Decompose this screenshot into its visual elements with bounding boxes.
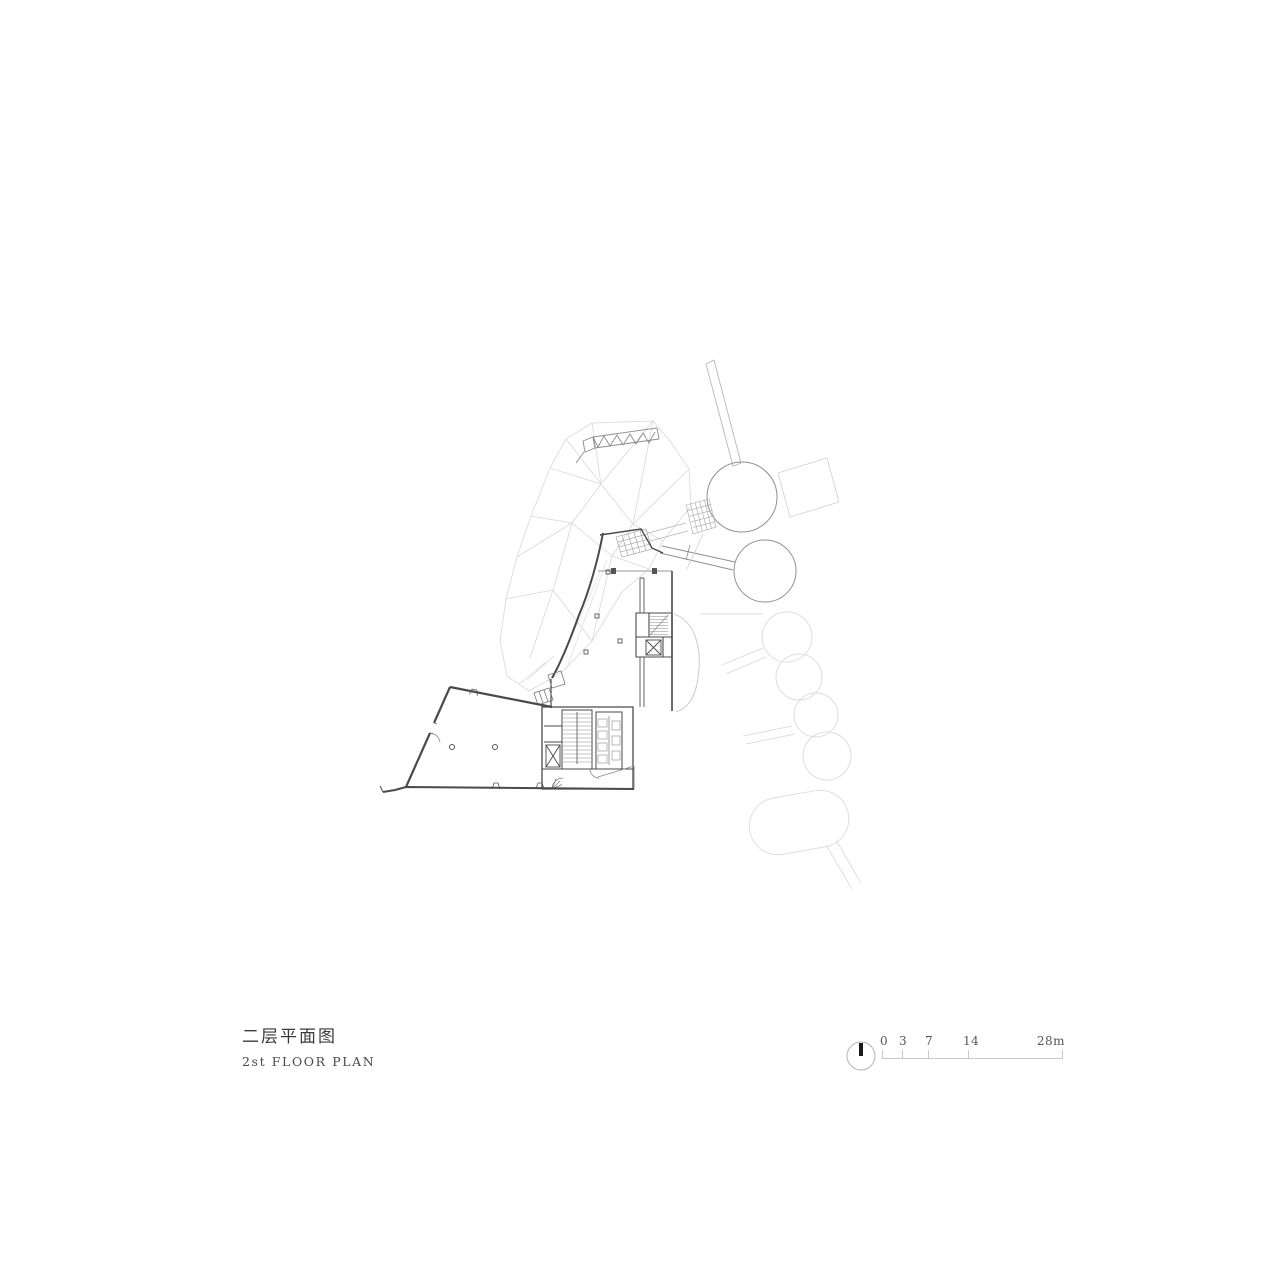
wing-north-wall <box>450 687 552 707</box>
grid-deck <box>686 499 716 534</box>
elevator-shaft <box>646 640 661 655</box>
north-arrow-icon <box>844 1039 878 1073</box>
wall-pier <box>652 568 657 574</box>
plan-title-english: 2st FLOOR PLAN <box>242 1054 375 1069</box>
faceted-canopy-outline <box>500 421 691 691</box>
tree-pod-lower <box>660 534 796 602</box>
main-core <box>542 707 634 789</box>
ramp-grid <box>616 523 688 557</box>
tree-pod-chain <box>700 612 861 889</box>
scale-bar: 0 3 7 14 28m <box>882 1036 1063 1059</box>
pod-circle <box>707 462 777 532</box>
stair-treads <box>563 712 591 764</box>
scale-label: 14 <box>963 1034 979 1048</box>
pod-stalk <box>706 360 741 466</box>
plan-title-chinese: 二层平面图 <box>242 1028 375 1047</box>
scale-label: 0 <box>880 1034 888 1048</box>
wall-pier <box>611 568 616 574</box>
restroom-block <box>598 716 620 765</box>
elevator-shaft <box>546 745 560 767</box>
scale-label: 28m <box>1037 1034 1065 1048</box>
wing-south-wall <box>383 787 634 792</box>
door-swings <box>552 769 599 789</box>
pod-circle <box>734 540 796 602</box>
floor-plan-drawing <box>0 0 1280 1280</box>
east-terrace-band <box>674 614 699 712</box>
upper-core <box>636 613 672 657</box>
hall-columns <box>584 570 622 654</box>
access-bridge <box>660 545 735 570</box>
wing-west-wall <box>406 687 450 787</box>
column <box>450 745 455 750</box>
scale-baseline <box>882 1058 1063 1059</box>
stair-treads <box>650 615 668 635</box>
scale-label: 3 <box>899 1034 907 1048</box>
door-swing <box>430 723 440 742</box>
scale-label: 7 <box>925 1034 933 1048</box>
tree-pod-upper <box>686 360 839 534</box>
title-block: 二层平面图 2st FLOOR PLAN <box>242 1028 375 1069</box>
corridor-walls <box>640 578 644 707</box>
rotated-terrace <box>778 458 839 517</box>
entry-vestibule <box>534 671 565 705</box>
column <box>493 745 498 750</box>
roof-truss-band <box>576 428 659 463</box>
